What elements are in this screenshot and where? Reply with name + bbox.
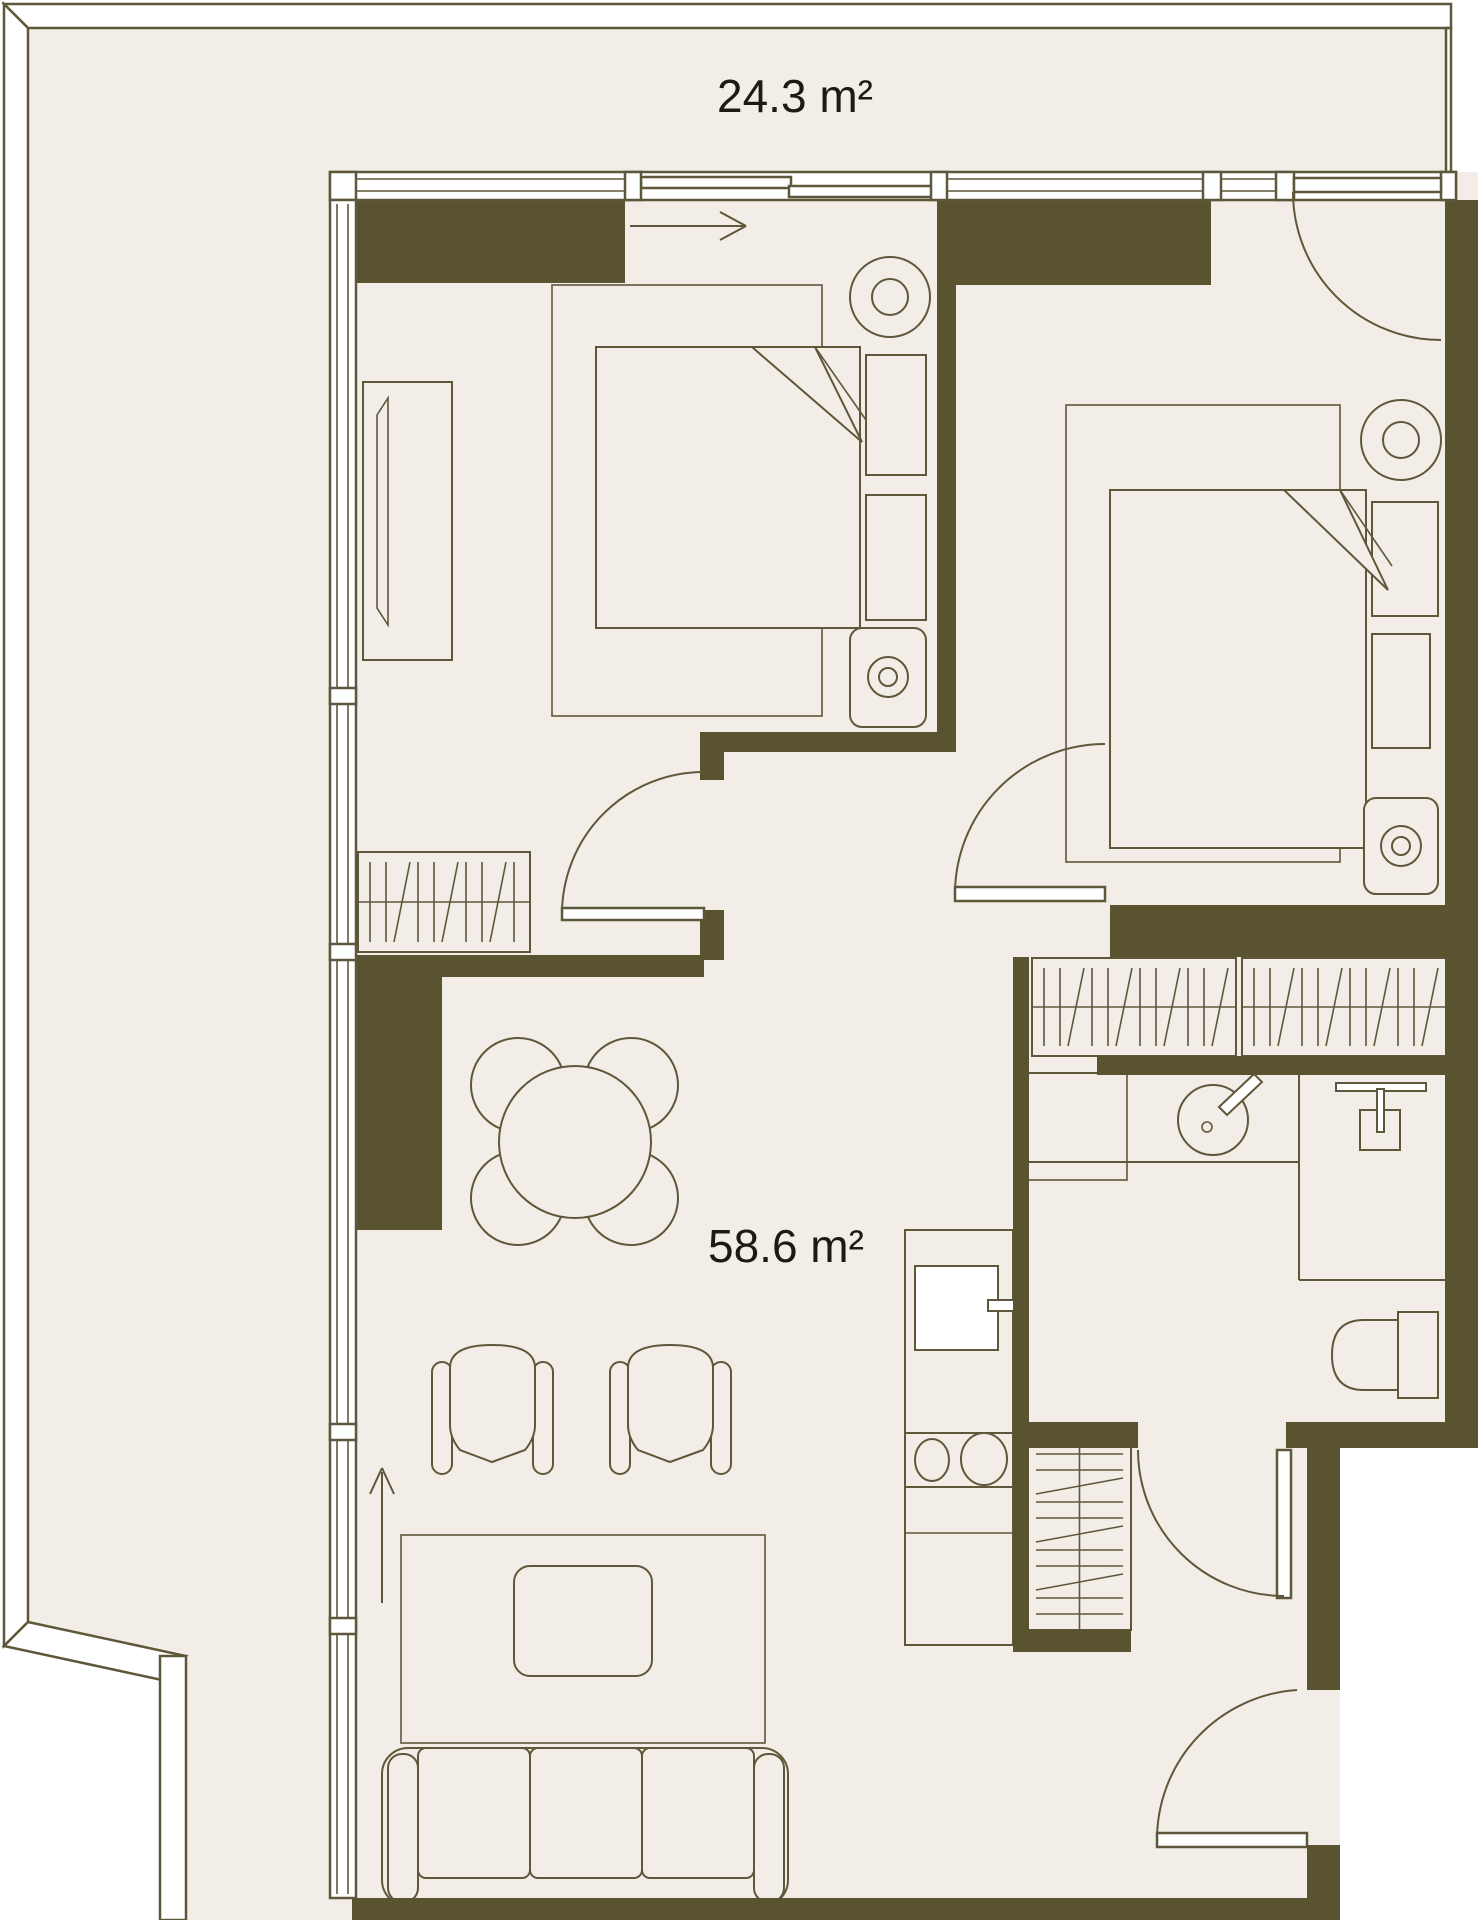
wall-bedroom1-top (356, 200, 625, 283)
toilet-icon (1332, 1312, 1438, 1398)
wall-bedroom-divider (937, 283, 956, 752)
pillow (866, 355, 926, 475)
armchair-icon (432, 1345, 553, 1474)
window-pier (1276, 172, 1294, 200)
wall-core-west (1013, 957, 1029, 1652)
window-pier (931, 172, 947, 200)
sofa-cushion (418, 1748, 530, 1878)
kitchen-units (905, 1230, 1016, 1645)
kitchen-counter (905, 1487, 1013, 1645)
wall-bathroom-south (1013, 1422, 1138, 1448)
floor-plan-drawing: 24.3 m² 58.6 m² (0, 0, 1478, 1920)
bedside-lamp-icon (850, 628, 926, 727)
closet-bedroom1 (358, 852, 530, 952)
wall-vestibule-north (700, 732, 956, 752)
sofa-armrest (388, 1754, 418, 1902)
door-leaf-bedroom1 (562, 908, 704, 920)
wall-bedroom2-south (1110, 905, 1456, 957)
bedside-table-2 (1364, 798, 1438, 894)
terrace-band-top (4, 4, 1451, 28)
window-pier (625, 172, 641, 200)
pillow (1372, 502, 1438, 616)
window-pier (330, 688, 356, 704)
oven-icon (915, 1266, 998, 1350)
hall-closet (1028, 1442, 1131, 1630)
sofa (382, 1748, 788, 1906)
wall-bedroom1-door-jamb (700, 752, 724, 780)
wardrobe-section-1 (1032, 958, 1236, 1056)
floor-plan-page: 24.3 m² 58.6 m² (0, 0, 1478, 1920)
wall-under-wardrobe (1097, 1056, 1451, 1075)
wall-right (1445, 200, 1478, 1448)
pillow (866, 495, 926, 620)
door-leaf-bedroom2 (955, 887, 1105, 901)
window-pier (1203, 172, 1221, 200)
bedside-lamp-icon (1364, 798, 1438, 894)
wardrobe-section-2 (1242, 958, 1451, 1056)
toilet-bowl (1332, 1320, 1398, 1390)
wall-bottom (352, 1898, 1340, 1920)
sofa-cushion (642, 1748, 754, 1878)
terrace-band-south (160, 1656, 186, 1920)
window-pier (330, 1424, 356, 1440)
cooktop-icon (905, 1433, 1013, 1487)
wall-left-pier (356, 955, 442, 1230)
dresser-bedroom1 (363, 382, 452, 660)
apartment-area-label: 58.6 m² (708, 1220, 864, 1272)
window-pier (330, 1618, 356, 1634)
sliding-door-panel (641, 177, 791, 188)
window-pier (330, 172, 356, 200)
dining-set (471, 1038, 678, 1245)
window-pier (1441, 172, 1456, 200)
door-leaf-bathroom (1277, 1450, 1291, 1598)
sofa-armrest (754, 1754, 784, 1902)
terrace-band-left (4, 4, 28, 1646)
wall-bathroom-south (1286, 1422, 1456, 1448)
bedside-table-1 (850, 628, 926, 727)
door-leaf-entrance (1157, 1833, 1307, 1847)
armchair-icon (610, 1345, 731, 1474)
sliding-door-panel (789, 186, 935, 197)
door-leaf-terrace-entry (1294, 178, 1441, 192)
double-bed-icon (1110, 490, 1366, 848)
pillow (1372, 634, 1430, 748)
wall-hall-closet-south (1013, 1630, 1131, 1652)
toilet-cistern (1398, 1312, 1438, 1398)
terrace-band-right-cap (1446, 28, 1451, 172)
window-pier (330, 944, 356, 960)
dining-set-icon (499, 1066, 651, 1218)
shower-stem (1377, 1089, 1384, 1132)
wall-bedroom2-top (937, 200, 1211, 285)
wall-east-lower (1307, 1448, 1340, 1690)
sofa-cushion (530, 1748, 642, 1878)
terrace-area-label: 24.3 m² (717, 70, 873, 122)
oven-handle (988, 1300, 1016, 1311)
coffee-table-icon (514, 1566, 652, 1676)
window-wall-left (330, 200, 356, 1898)
